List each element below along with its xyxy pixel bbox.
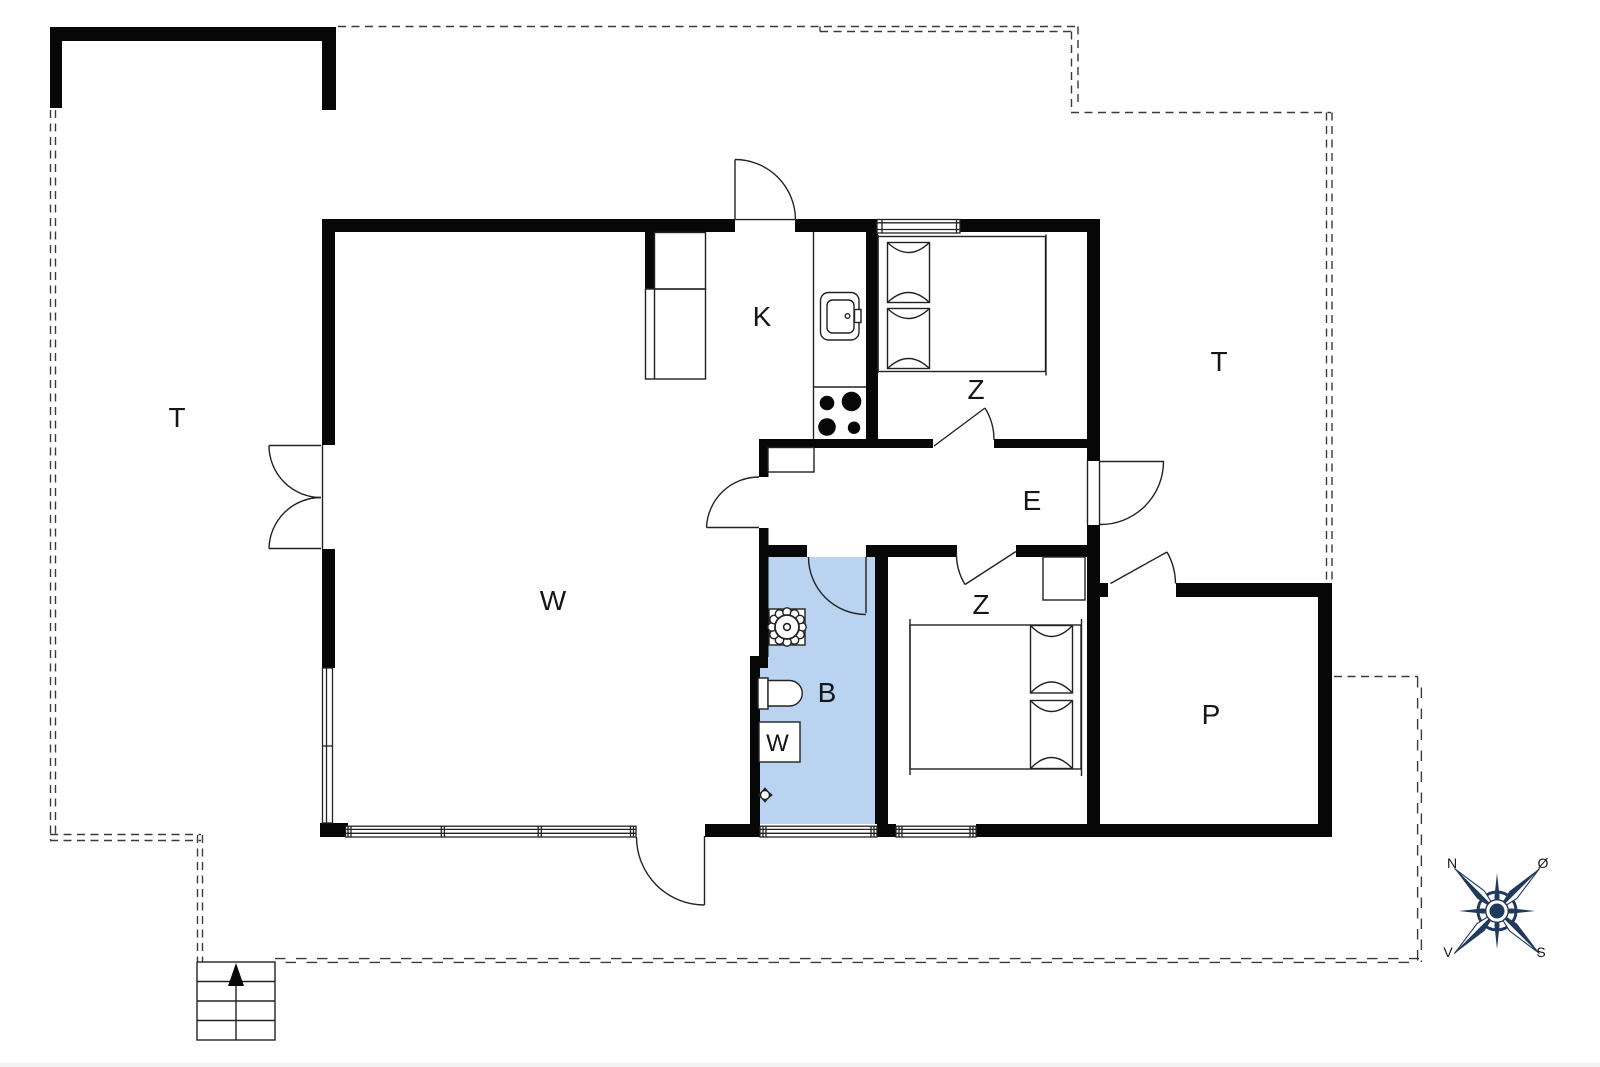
svg-text:Ø: Ø	[1538, 855, 1549, 871]
svg-text:T: T	[1210, 346, 1227, 377]
svg-text:P: P	[1202, 699, 1221, 730]
svg-text:K: K	[753, 301, 772, 332]
svg-text:Z: Z	[972, 589, 989, 620]
svg-text:E: E	[1023, 485, 1042, 516]
svg-text:V: V	[1443, 944, 1453, 960]
svg-text:N: N	[1447, 855, 1457, 871]
svg-text:S: S	[1536, 944, 1545, 960]
svg-text:B: B	[818, 677, 837, 708]
svg-text:Z: Z	[967, 374, 984, 405]
svg-text:W: W	[766, 730, 789, 757]
svg-text:W: W	[540, 585, 567, 616]
svg-text:T: T	[168, 402, 185, 433]
